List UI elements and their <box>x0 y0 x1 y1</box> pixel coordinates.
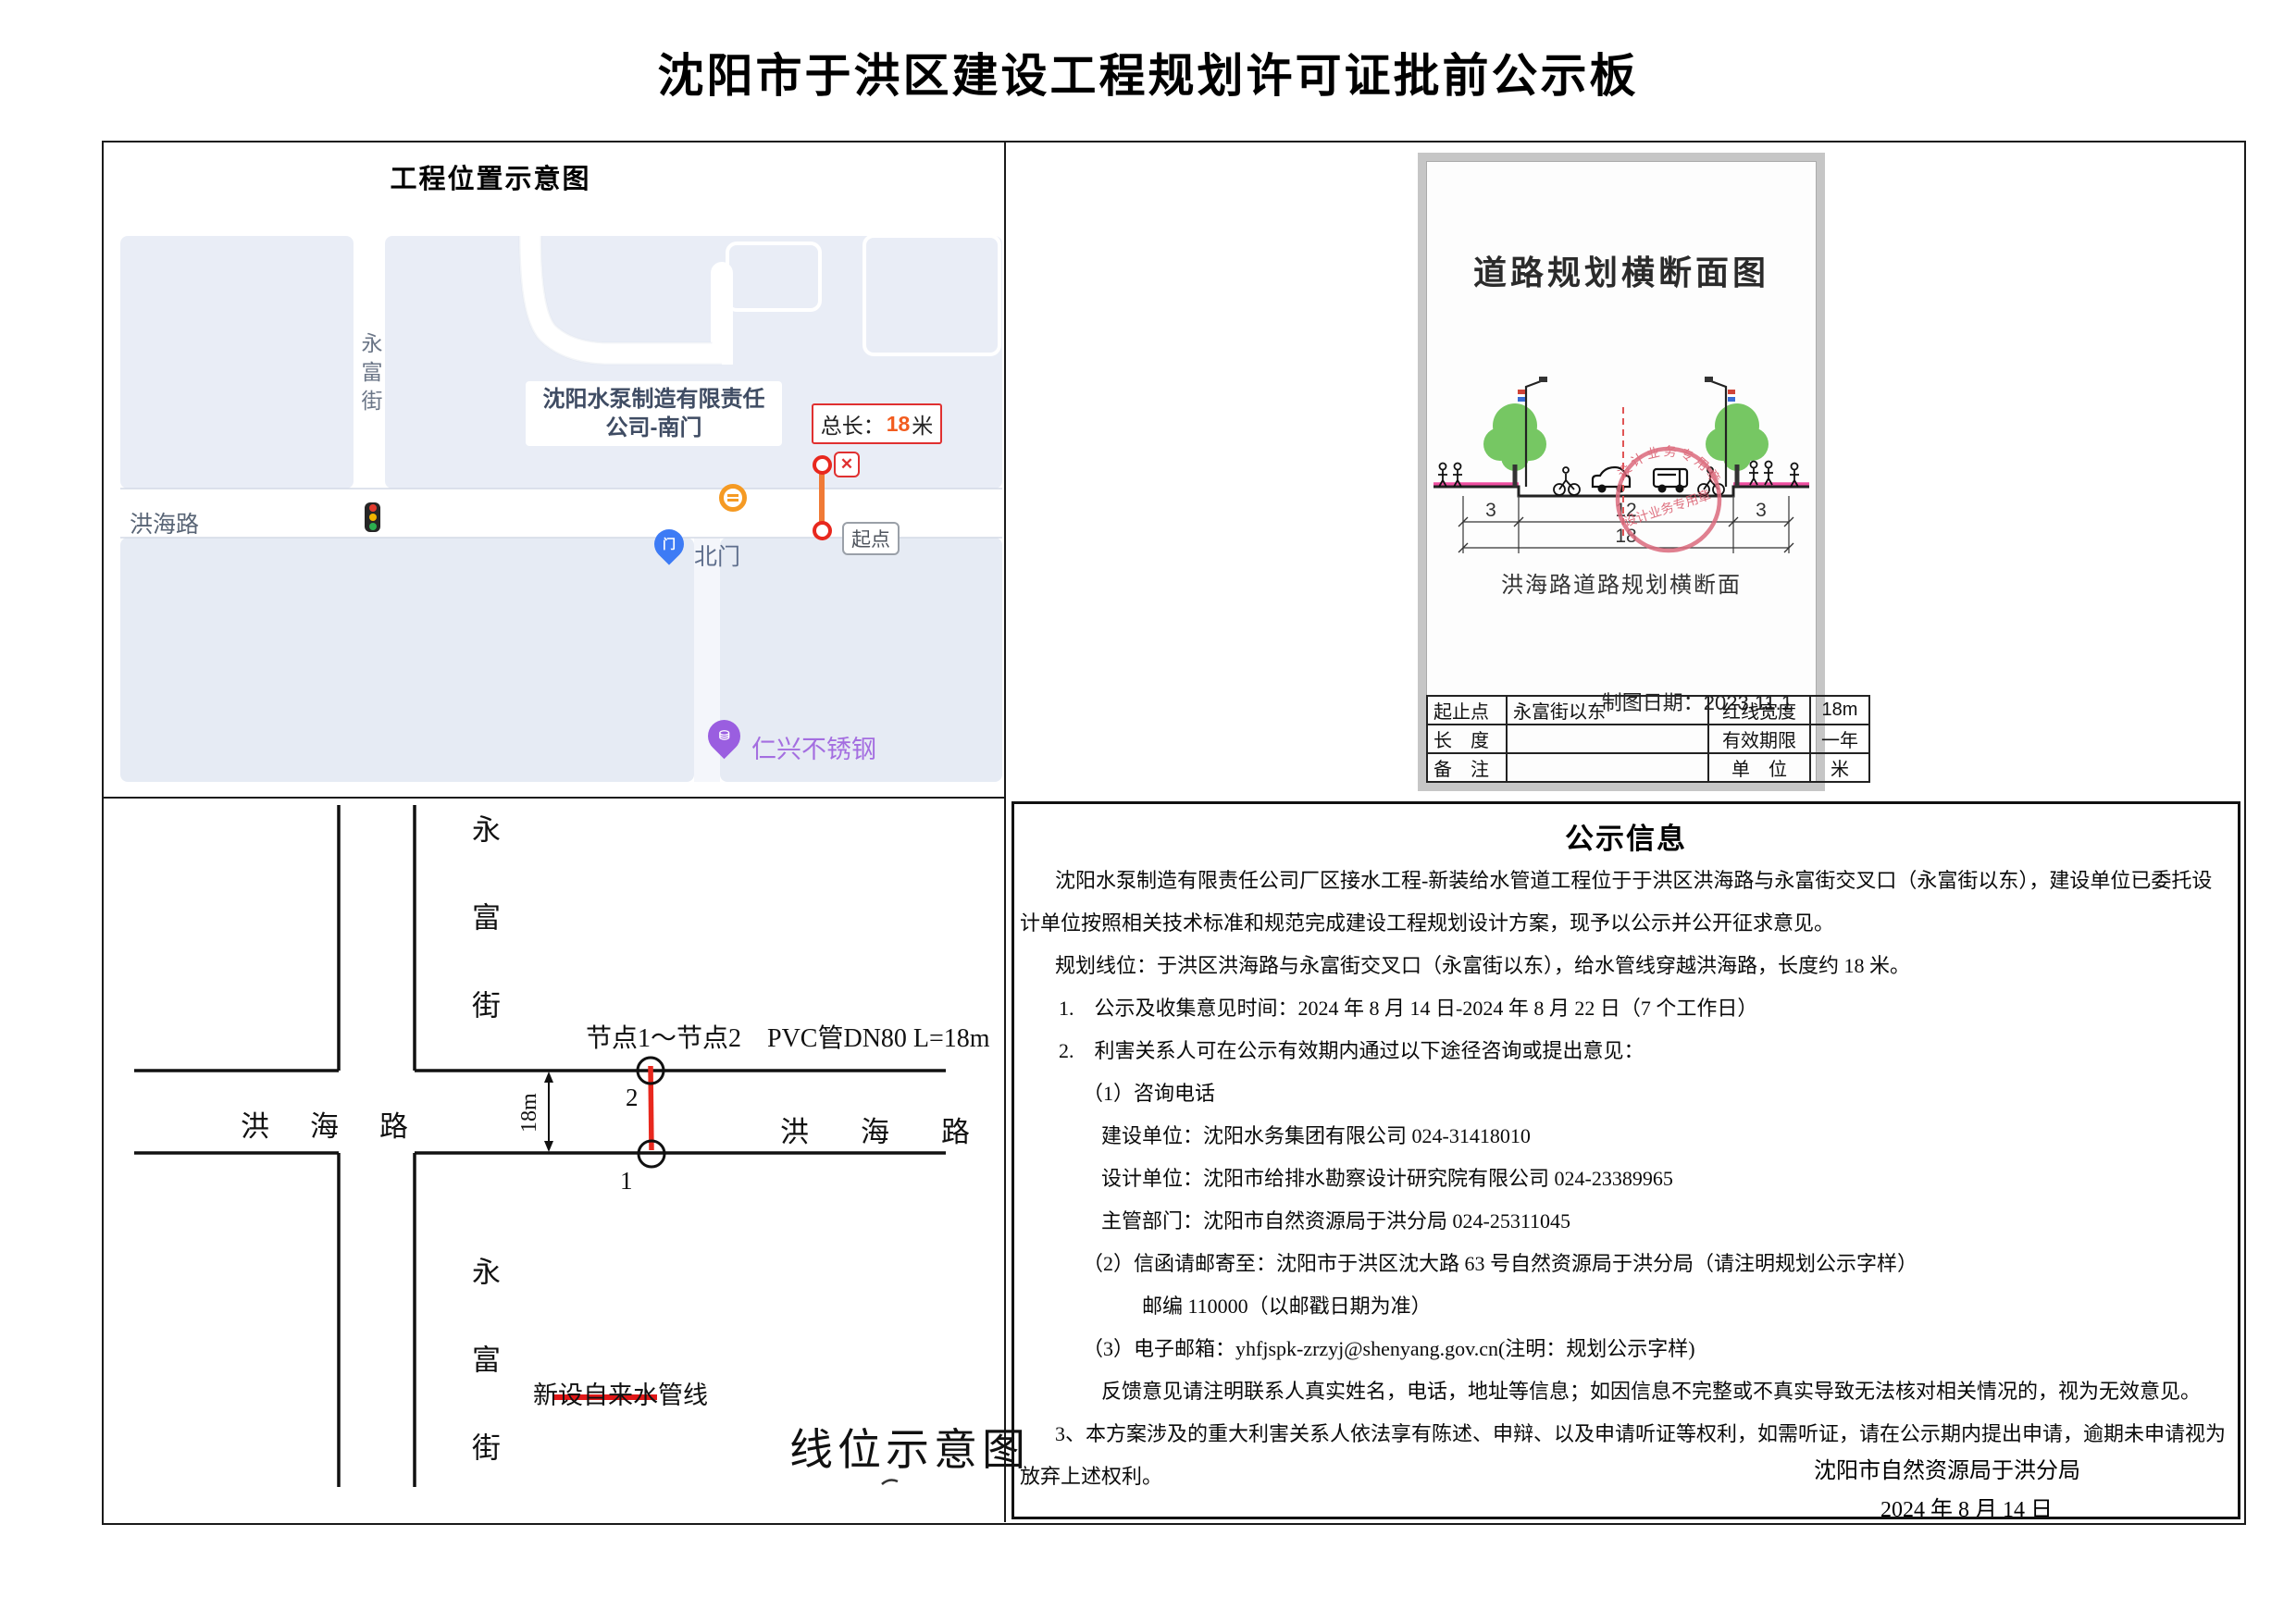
map-road-label: 洪海路 <box>130 506 199 539</box>
notice-line: 计单位按照相关技术标准和规范完成建设工程规划设计方案，现予以公示并公开征求意见。 <box>1020 902 2238 945</box>
notice-line: 邮编 110000（以邮戳日期为准） <box>1142 1285 2238 1328</box>
close-glyph: ✕ <box>840 455 853 474</box>
table-cell: 有效期限 <box>1708 725 1810 753</box>
dimension-18m: 18m <box>517 1072 553 1152</box>
page-title: 沈阳市于洪区建设工程规划许可证批前公示板 <box>0 39 2296 105</box>
dim-right: 3 <box>1756 500 1767 521</box>
vertical-divider <box>1004 141 1006 1522</box>
end-point-marker <box>813 455 832 475</box>
map-street-label: 永富街 <box>354 332 386 418</box>
gate-label: 北门 <box>694 539 740 572</box>
water-pipe-line <box>651 1066 652 1150</box>
table-cell: 长 度 <box>1427 725 1507 753</box>
table-cell <box>1507 725 1708 753</box>
node-2-label: 2 <box>626 1084 639 1111</box>
length-unit: 米 <box>912 408 933 440</box>
notice-line: 设计单位：沈阳市给排水勘察设计研究院有限公司 024-23389965 <box>1101 1158 2238 1200</box>
shop-label: 仁兴不锈钢 <box>751 729 876 765</box>
table-cell: 18m <box>1810 696 1869 725</box>
notice-date: 2024 年 8 月 14 日 <box>1880 1491 2053 1519</box>
notice-line: 2. 利害关系人可在公示有效期内通过以下途径咨询或提出意见： <box>1059 1030 2238 1072</box>
close-icon[interactable]: ✕ <box>834 452 860 477</box>
start-point-label: 起点 <box>842 522 900 555</box>
length-prefix: 总长： <box>821 408 885 440</box>
notice-line: 反馈意见请注明联系人真实姓名，电话，地址等信息；如因信息不完整或不真实导致无法核… <box>1101 1370 2238 1413</box>
table-cell: 一年 <box>1810 725 1869 753</box>
notice-line: 沈阳水泵制造有限责任公司厂区接水工程-新装给水管道工程位于于洪区洪海路与永富街交… <box>1055 860 2238 902</box>
stray-mark <box>882 1481 898 1484</box>
line-diagram: 18m 2 1 <box>102 798 1004 1519</box>
public-notice-panel: 公示信息 沈阳水泵制造有限责任公司厂区接水工程-新装给水管道工程位于于洪区洪海路… <box>1011 801 2240 1519</box>
map-block <box>120 538 694 782</box>
table-row: 长 度 有效期限 一年 <box>1427 725 1869 753</box>
table-cell: 备 注 <box>1427 753 1507 782</box>
tree-icon <box>1483 403 1546 487</box>
notice-board: 沈阳市于洪区建设工程规划许可证批前公示板 工程位置示意图 永富街 <box>0 0 2296 1623</box>
notice-line: 主管部门：沈阳市自然资源局于洪分局 024-25311045 <box>1101 1200 2238 1243</box>
table-cell: 永富街以东 <box>1507 696 1708 725</box>
company-label-line2: 公司-南门 <box>606 414 702 442</box>
table-cell: 红线宽度 <box>1708 696 1810 725</box>
traffic-light-icon <box>365 502 380 532</box>
dim-18m-label: 18m <box>517 1093 541 1133</box>
table-row: 备 注 单 位 米 <box>1427 753 1869 782</box>
table-cell: 米 <box>1810 753 1869 782</box>
start-point-marker <box>813 521 832 540</box>
cross-section-table: 起止点 永富街以东 红线宽度 18m 长 度 有效期限 一年 备 注 单 位 米 <box>1426 695 1870 783</box>
notice-line: 规划线位：于洪区洪海路与永富街交叉口（永富街以东），给水管线穿越洪海路，长度约 … <box>1055 945 2238 987</box>
street-label-top: 永富街 <box>463 814 504 1078</box>
notice-line: （2）信函请邮寄至：沈阳市于洪区沈大路 63 号自然资源局于洪分局（请注明规划公… <box>1083 1243 2238 1285</box>
legend-label: 新设自来水管线 <box>533 1375 708 1411</box>
cross-section-title: 道路规划横断面图 <box>1426 246 1817 294</box>
table-cell: 起止点 <box>1427 696 1507 725</box>
notice-body: 沈阳水泵制造有限责任公司厂区接水工程-新装给水管道工程位于于洪区洪海路与永富街交… <box>1018 860 2238 1498</box>
cross-section-caption: 洪海路道路规划横断面 <box>1426 566 1817 599</box>
notice-signature: 沈阳市自然资源局于洪分局 <box>1814 1452 2080 1484</box>
notice-line: 建设单位：沈阳水务集团有限公司 024-31418010 <box>1101 1115 2238 1158</box>
notice-line: 1. 公示及收集意见时间：2024 年 8 月 14 日-2024 年 8 月 … <box>1059 987 2238 1030</box>
road-label-right: 洪海路 <box>780 1109 1022 1150</box>
street-label-bottom: 永富街 <box>463 1257 504 1520</box>
table-row: 起止点 永富街以东 红线宽度 18m <box>1427 696 1869 725</box>
location-map: 永富街 洪海路 沈阳水泵制造有限责任 公司-南门 总长：18米 ✕ 起点 门 北… <box>120 236 1002 782</box>
cross-section-sheet: 道路规划横断面图 <box>1418 153 1825 791</box>
map-title: 工程位置示意图 <box>213 157 768 196</box>
pipe-segment-label: 节点1～节点2 PVC管DN80 L=18m <box>586 1018 990 1055</box>
gate-glyph: 门 <box>663 535 676 553</box>
cross-section-drawing: 3 12 3 18 设计业务专用章 设计业务专用章 <box>1426 298 1817 576</box>
map-block <box>120 236 354 489</box>
company-label: 沈阳水泵制造有限责任 公司-南门 <box>526 381 782 446</box>
line-diagram-title: 线位示意图 <box>789 1414 1030 1478</box>
table-cell <box>1507 753 1708 782</box>
length-value: 18 <box>887 412 911 437</box>
table-cell: 单 位 <box>1708 753 1810 782</box>
notice-line: 3、本方案涉及的重大利害关系人依法享有陈述、申辩、以及申请听证等权利，如需听证，… <box>1055 1413 2238 1456</box>
length-callout: 总长：18米 <box>812 403 942 444</box>
map-base <box>120 236 1002 782</box>
notice-title: 公示信息 <box>1014 815 2238 857</box>
node-1-label: 1 <box>620 1167 633 1195</box>
notice-line: （3）电子邮箱：yhfjspk-zrzyj@shenyang.gov.cn(注明… <box>1083 1328 2238 1370</box>
transit-station-icon <box>719 484 747 512</box>
van-icon <box>1654 469 1687 493</box>
dim-left: 3 <box>1485 500 1496 521</box>
company-label-line1: 沈阳水泵制造有限责任 <box>543 385 765 414</box>
notice-line: （1）咨询电话 <box>1083 1072 2238 1115</box>
route-polyline <box>819 467 825 528</box>
road-label-left: 洪海路 <box>241 1103 449 1145</box>
